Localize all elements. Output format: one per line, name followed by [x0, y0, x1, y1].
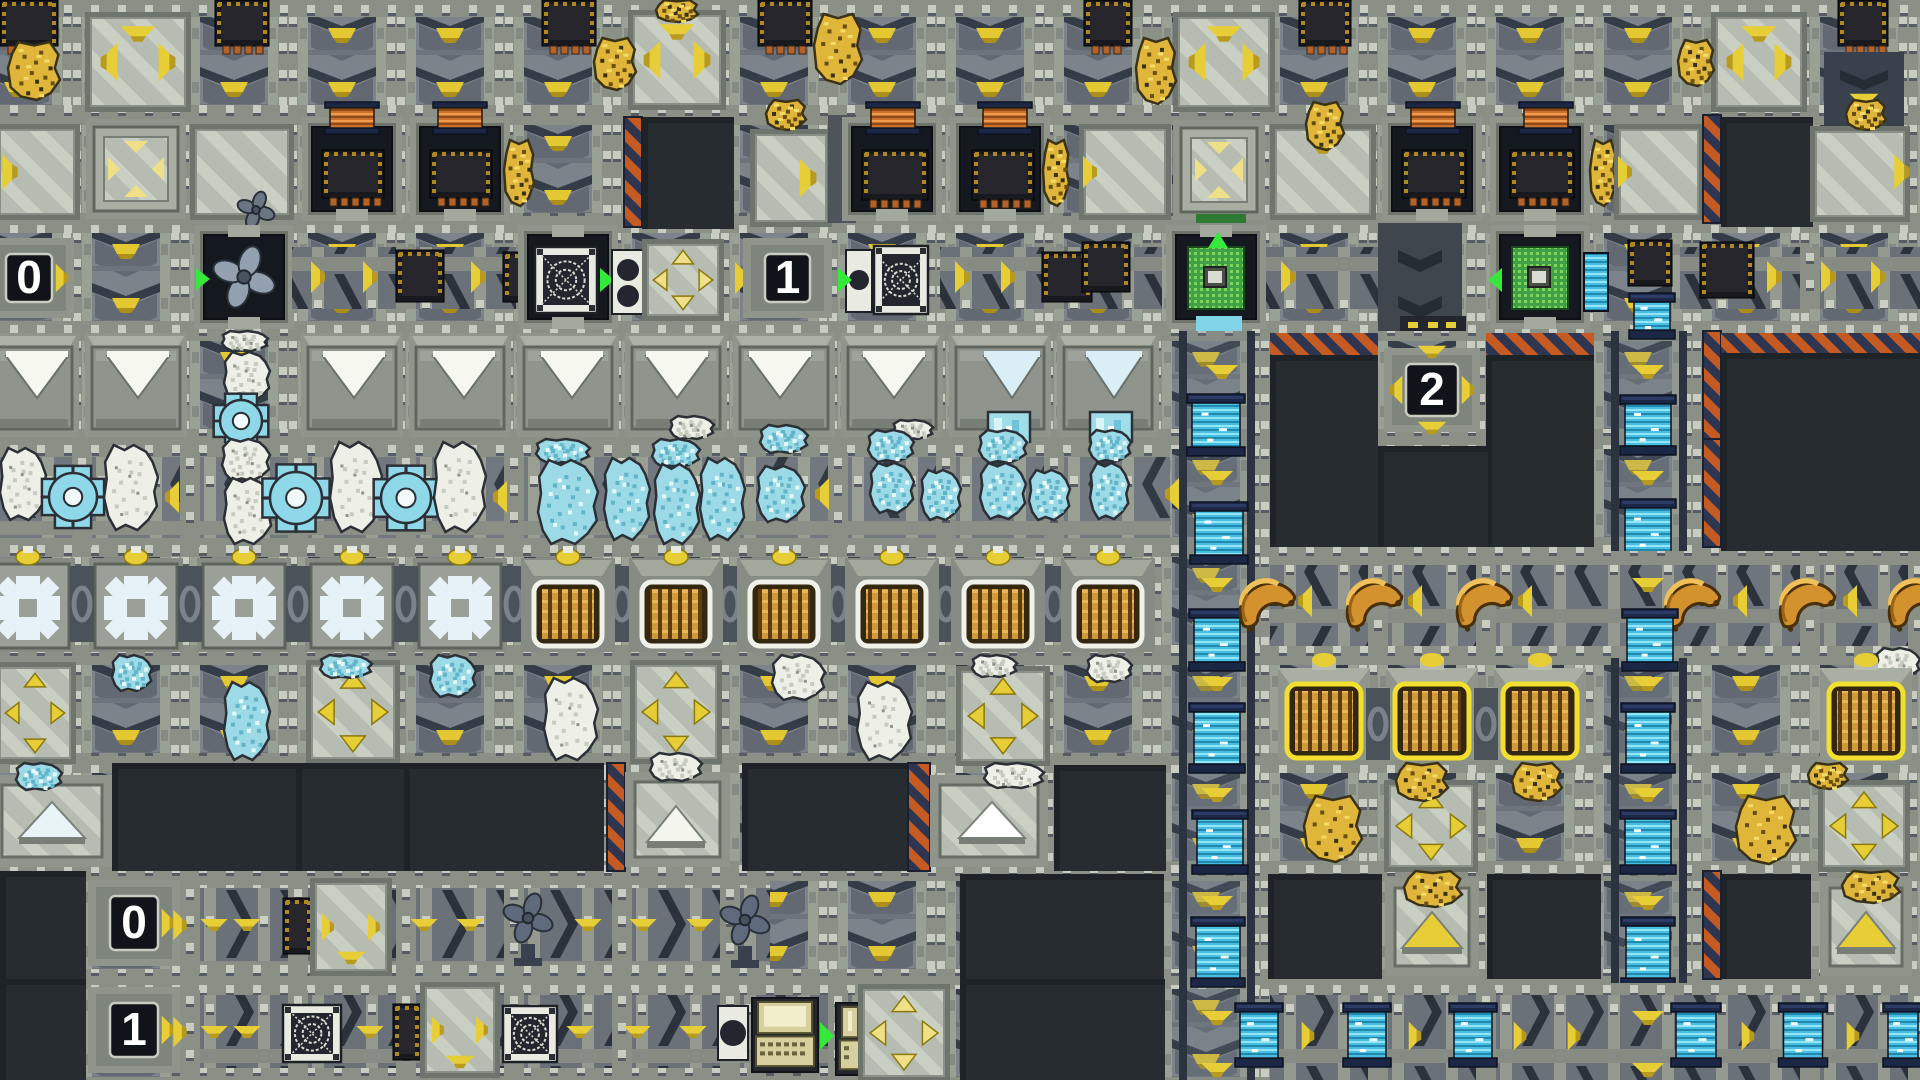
svg-text:1: 1 [775, 251, 801, 303]
svg-text:0: 0 [121, 896, 147, 948]
svg-text:0: 0 [16, 251, 42, 303]
svg-text:2: 2 [1419, 363, 1445, 415]
svg-text:1: 1 [121, 1003, 147, 1055]
